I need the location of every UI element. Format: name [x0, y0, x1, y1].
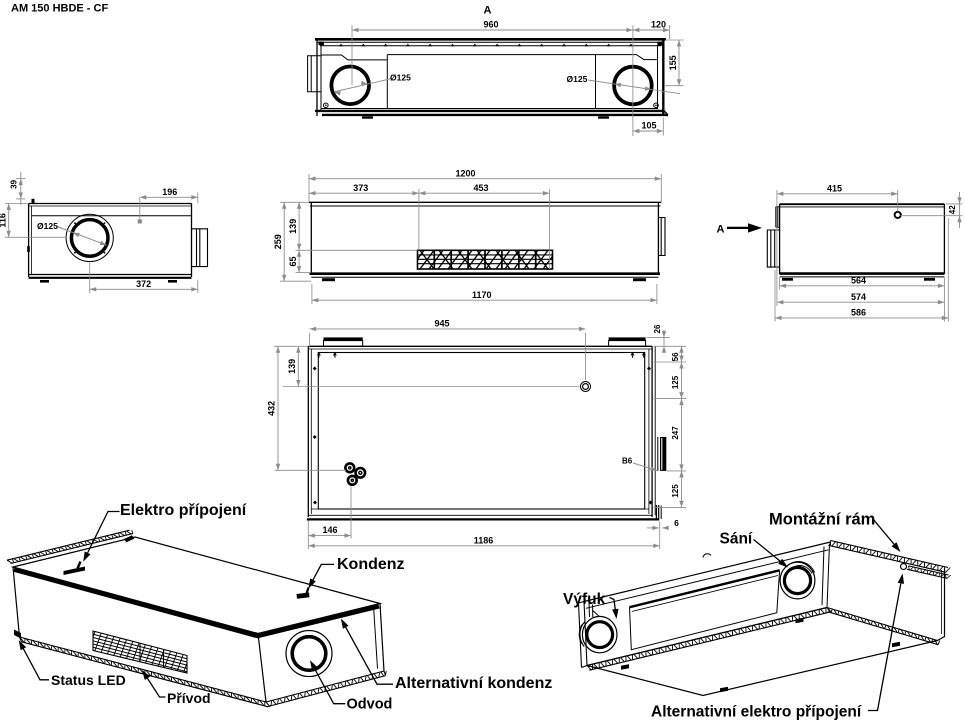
svg-text:1170: 1170 [472, 290, 492, 300]
svg-text:Přívod: Přívod [167, 690, 211, 706]
svg-text:105: 105 [641, 120, 656, 130]
svg-text:Elektro přípojení: Elektro přípojení [120, 502, 247, 519]
svg-text:56: 56 [671, 352, 680, 361]
svg-text:Ø125: Ø125 [390, 73, 411, 83]
svg-text:Výfuk: Výfuk [563, 591, 606, 608]
svg-text:Sání: Sání [720, 531, 753, 548]
svg-text:196: 196 [162, 187, 177, 197]
svg-text:A: A [484, 5, 492, 17]
svg-text:960: 960 [483, 20, 498, 30]
svg-text:65: 65 [288, 256, 298, 266]
svg-text:139: 139 [288, 219, 298, 234]
svg-text:Status LED: Status LED [51, 672, 126, 688]
svg-text:A: A [717, 224, 725, 236]
svg-text:Alternativní elektro přípojení: Alternativní elektro přípojení [651, 704, 862, 721]
svg-text:155: 155 [668, 55, 678, 70]
svg-text:Ø125: Ø125 [567, 74, 588, 84]
svg-text:453: 453 [473, 183, 488, 193]
svg-text:125: 125 [671, 484, 680, 498]
svg-text:120: 120 [651, 20, 666, 30]
svg-text:125: 125 [671, 375, 680, 389]
svg-text:259: 259 [273, 234, 283, 249]
svg-text:B6: B6 [622, 457, 633, 466]
svg-text:1200: 1200 [455, 168, 475, 178]
svg-text:564: 564 [851, 275, 866, 285]
svg-text:146: 146 [322, 525, 337, 535]
svg-text:432: 432 [267, 401, 277, 416]
svg-text:373: 373 [353, 183, 368, 193]
svg-text:26: 26 [653, 324, 662, 333]
svg-text:415: 415 [827, 183, 842, 193]
svg-text:Montážní rám: Montážní rám [769, 511, 875, 529]
svg-text:1186: 1186 [474, 535, 494, 545]
svg-text:39: 39 [9, 179, 18, 188]
svg-text:Odvod: Odvod [347, 697, 393, 713]
svg-text:42: 42 [948, 205, 957, 214]
svg-text:247: 247 [671, 426, 680, 440]
svg-text:AM 150 HBDE - CF: AM 150 HBDE - CF [11, 3, 108, 15]
svg-text:116: 116 [0, 213, 7, 228]
svg-text:Ø125: Ø125 [37, 221, 58, 231]
svg-text:574: 574 [851, 292, 866, 302]
svg-text:6: 6 [674, 518, 679, 528]
svg-text:372: 372 [136, 279, 151, 289]
svg-text:Alternativní kondenz: Alternativní kondenz [395, 675, 552, 692]
svg-text:586: 586 [851, 308, 866, 318]
svg-text:Kondenz: Kondenz [337, 556, 405, 573]
svg-text:945: 945 [434, 318, 449, 328]
svg-text:139: 139 [287, 359, 297, 374]
